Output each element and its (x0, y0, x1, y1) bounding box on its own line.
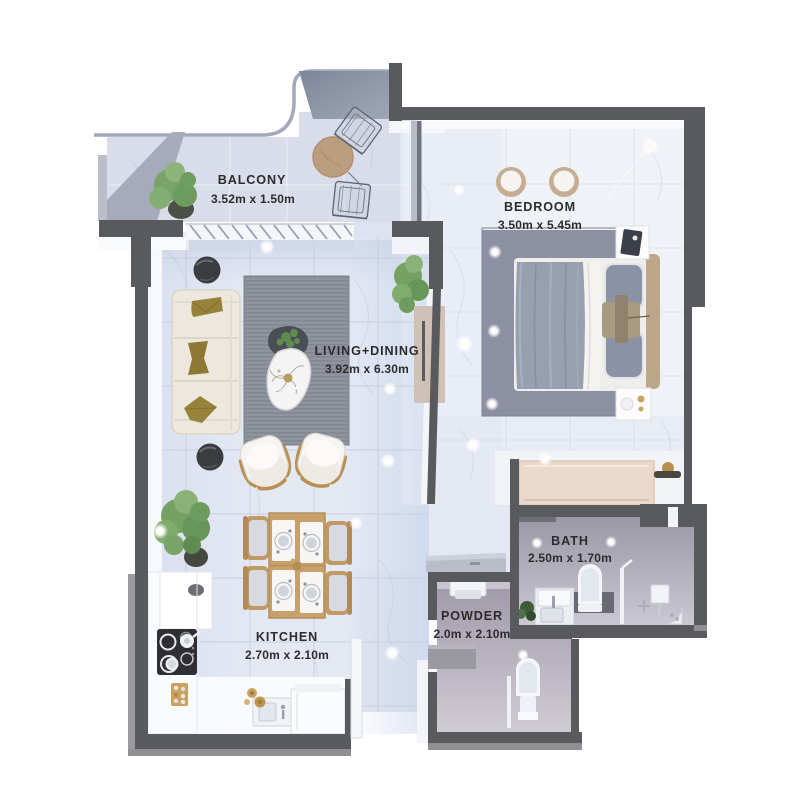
svg-text:BEDROOM: BEDROOM (504, 200, 576, 214)
svg-text:2.50m x 1.70m: 2.50m x 1.70m (528, 551, 612, 565)
svg-text:3.92m x 6.30m: 3.92m x 6.30m (325, 362, 409, 376)
svg-text:3.52m x 1.50m: 3.52m x 1.50m (211, 192, 295, 206)
svg-text:BALCONY: BALCONY (218, 173, 287, 187)
svg-text:3.50m x 5.45m: 3.50m x 5.45m (498, 218, 582, 232)
svg-text:LIVING+DINING: LIVING+DINING (314, 344, 419, 358)
svg-text:2.70m x 2.10m: 2.70m x 2.10m (245, 648, 329, 662)
svg-text:2.0m x 2.10m: 2.0m x 2.10m (433, 627, 510, 641)
svg-text:KITCHEN: KITCHEN (256, 630, 318, 644)
svg-text:BATH: BATH (551, 534, 589, 548)
svg-text:POWDER: POWDER (441, 609, 503, 623)
